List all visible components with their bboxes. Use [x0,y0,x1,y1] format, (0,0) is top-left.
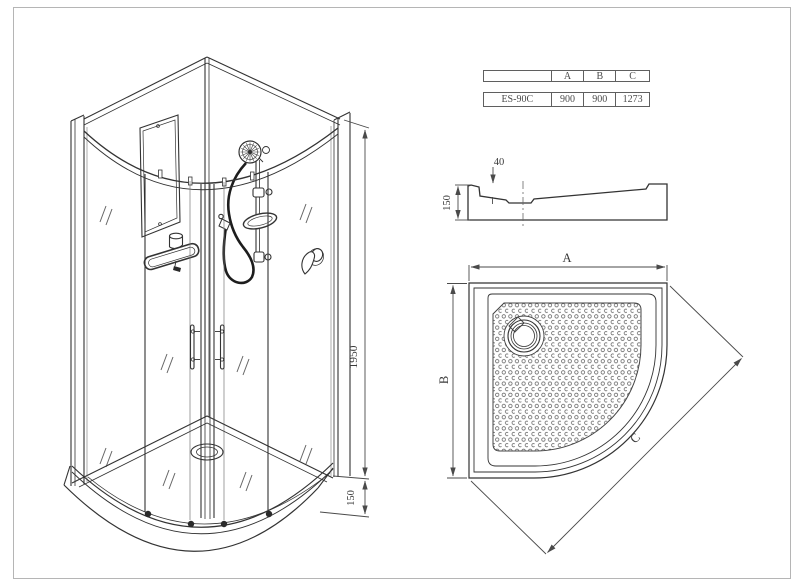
profile-dim-40 [493,167,494,204]
technical-drawing: 1950 150 150 40 [0,0,800,587]
top-view: A B C [437,251,743,554]
profile-outline [468,184,667,220]
shelf-hook [173,266,181,272]
shelf [143,233,200,272]
mixer-handle [302,246,326,274]
left-post [71,115,84,486]
top-rail [84,128,338,190]
iso-height-dim: 1950 [348,345,360,368]
tray-drain-top [504,316,544,356]
top-view-diagonal-dim: C [627,430,643,446]
drawing-sheet: A B C ES-90C 900 900 1273 [0,0,800,587]
back-wall-top-edges [84,57,340,125]
glass-reflections [100,204,312,491]
profile-view: 150 40 [442,157,667,227]
top-view-width-dim: A [562,251,571,265]
iso-dimensions [320,120,369,517]
tray-base [64,416,333,551]
shower-head [239,141,270,163]
profile-depth-dim: 40 [494,157,505,168]
cup [170,233,183,248]
profile-height-dim: 150 [442,195,453,211]
door-handle-right [215,325,224,369]
corner-post [205,58,209,417]
iso-view: 1950 150 [64,57,369,551]
iso-tray-height-dim: 150 [346,490,357,506]
hose-connector [219,219,230,230]
door-rollers [145,511,272,527]
top-view-depth-dim: B [437,376,451,384]
door-handle-left [191,325,201,369]
soap-dish [242,210,278,232]
right-post [334,112,350,477]
tray-drain [191,444,223,460]
